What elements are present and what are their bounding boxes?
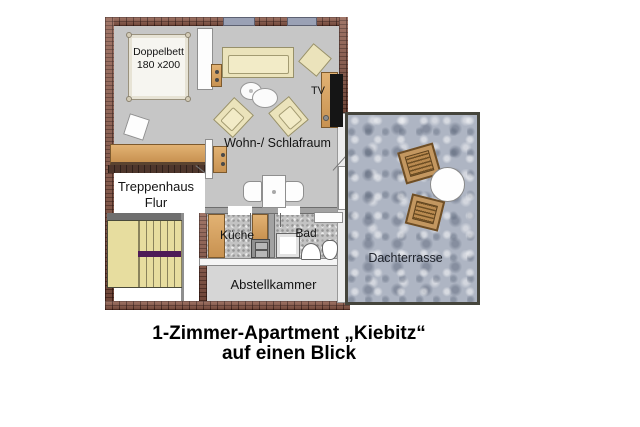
sofa-seat: [228, 55, 289, 74]
plan-title-line2: auf einen Blick: [0, 344, 578, 364]
dining-table: [262, 175, 286, 208]
window: [287, 17, 317, 26]
roof-terrace: Dachterrasse: [345, 112, 480, 305]
chair-slats: [412, 201, 438, 225]
table-dot: [272, 190, 276, 194]
dresser-knob: [221, 153, 225, 157]
bed-label-line2: 180 x200: [129, 59, 188, 72]
bed-post: [126, 96, 132, 102]
stair-hall-label-line2: Flur: [114, 195, 198, 211]
bath-shelf: [314, 212, 343, 223]
tv-screen: [330, 74, 343, 127]
bed-label: Doppelbett 180 x200: [129, 46, 188, 72]
wall-stair-top: [107, 213, 183, 220]
sink: [301, 243, 321, 260]
bed-post: [185, 96, 191, 102]
nightstand-knob: [215, 78, 219, 82]
terrace-label: Dachterrasse: [348, 251, 463, 265]
nightstand-knob: [215, 70, 219, 74]
wall-bottom: [105, 301, 350, 310]
toilet: [322, 240, 338, 260]
door-leaf-hall: [205, 139, 213, 179]
bath-label: Bad: [275, 226, 337, 240]
dining-chair: [243, 181, 262, 202]
dining-chair: [285, 181, 304, 202]
door-swing-bath: [280, 213, 281, 227]
nightstand: [211, 64, 222, 87]
terrace-chair: [405, 193, 445, 231]
bed-label-line1: Doppelbett: [129, 46, 188, 59]
tv-label: TV: [303, 85, 325, 97]
dresser-knob: [221, 162, 225, 166]
double-bed: Doppelbett 180 x200: [128, 34, 189, 100]
plan-title: 1-Zimmer-Apartment „Kiebitz“ auf einen B…: [0, 324, 578, 363]
staircase: [107, 220, 182, 288]
bed-post: [185, 32, 191, 38]
stove-plate: [255, 250, 268, 258]
stair-landing-strip: [138, 251, 181, 257]
coffee-table: [252, 88, 278, 108]
terrace-table: [430, 167, 465, 202]
floorplan: Doppelbett 180 x200: [0, 0, 640, 427]
window: [223, 17, 255, 26]
stair-hall-label-line1: Treppenhaus: [114, 179, 198, 195]
tv-knob: [323, 115, 329, 121]
armchair-seat: [278, 105, 302, 130]
door-opening-kitchen: [228, 206, 252, 215]
armchair-seat: [220, 107, 245, 132]
bench: [110, 144, 206, 165]
bed-post: [126, 32, 132, 38]
table-dot: [249, 89, 253, 93]
storage-label: Abstellkammer: [199, 277, 348, 292]
sofa: [222, 47, 294, 78]
stove-plate: [255, 242, 268, 250]
plan-title-line1: 1-Zimmer-Apartment „Kiebitz“: [0, 324, 578, 344]
chair-slats: [405, 150, 435, 177]
stair-hall-label: Treppenhaus Flur: [114, 179, 198, 211]
living-room-label: Wohn-/ Schlafraum: [215, 136, 340, 150]
dresser: [213, 146, 227, 173]
kitchen-label: Küche: [206, 228, 268, 242]
